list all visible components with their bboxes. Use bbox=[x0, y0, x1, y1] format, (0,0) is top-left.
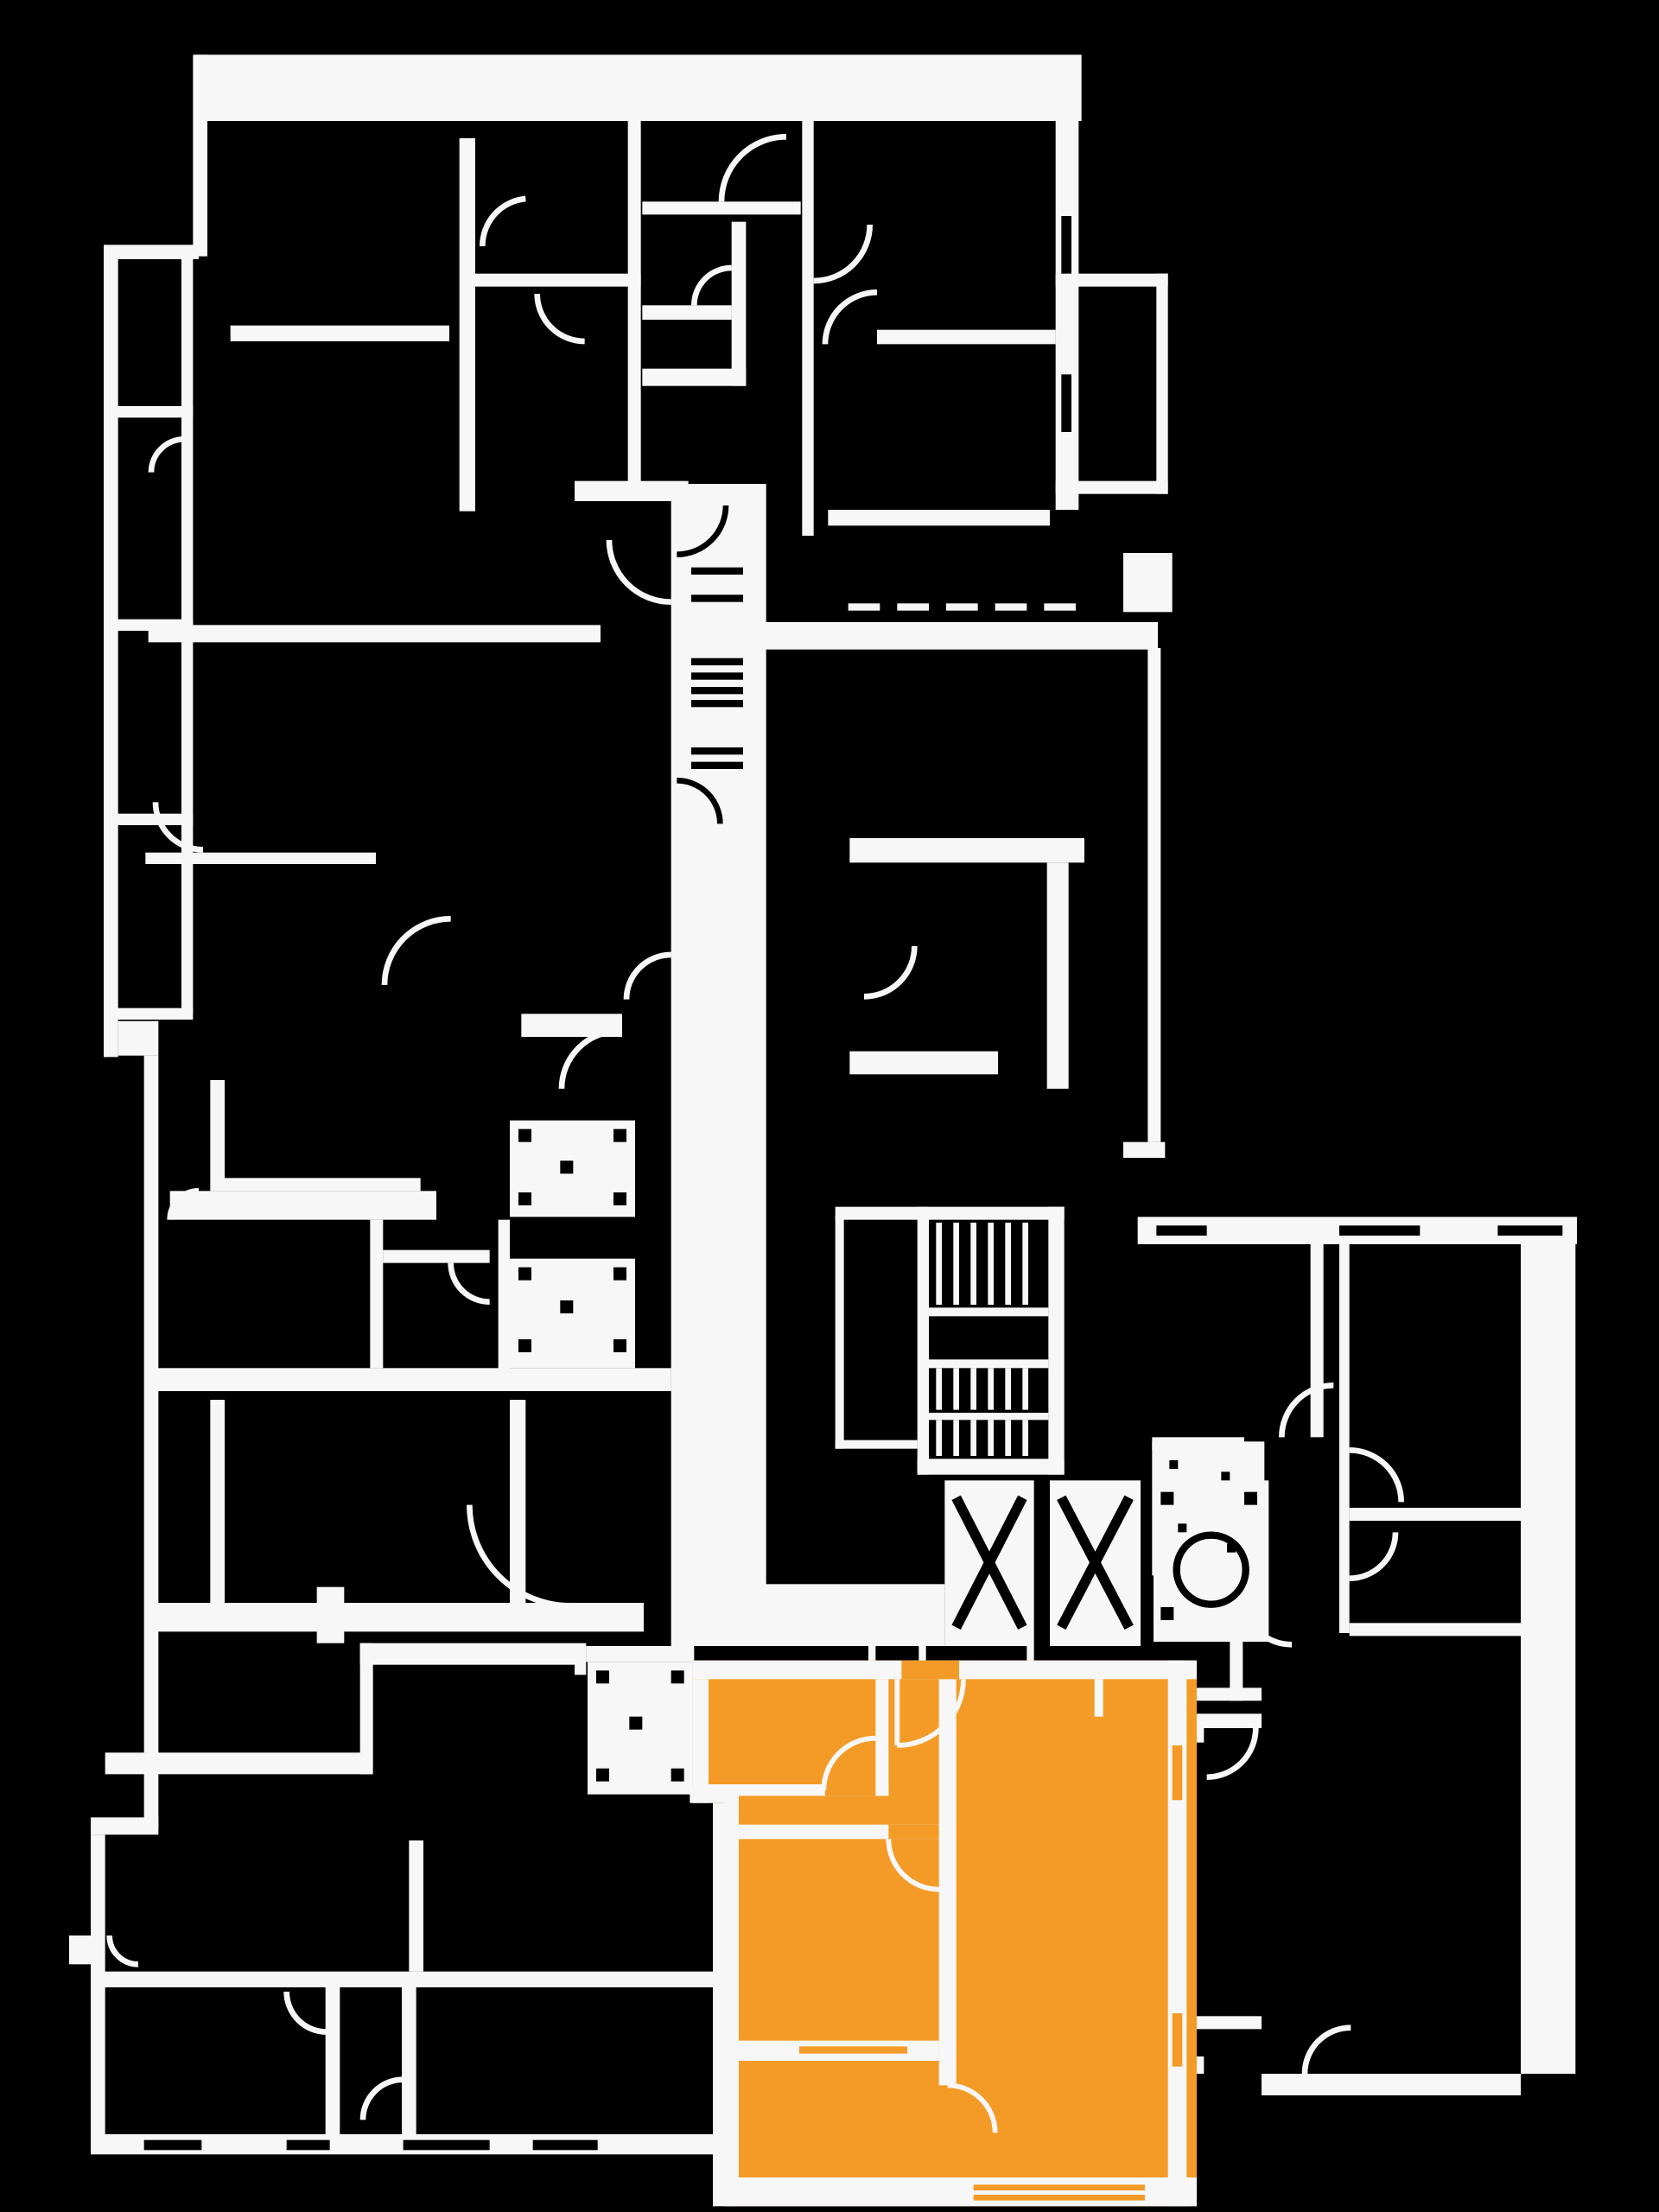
wall-segment bbox=[409, 1840, 423, 1972]
wall-segment bbox=[1047, 862, 1069, 1089]
unit-wall-segment bbox=[1095, 1679, 1103, 1716]
wall-segment bbox=[149, 625, 601, 642]
unit-wall-segment bbox=[730, 2177, 1197, 2206]
machine-room-mark bbox=[1160, 1607, 1173, 1620]
service-shaft-dot bbox=[596, 1670, 609, 1683]
wall-segment bbox=[732, 222, 747, 386]
wall-segment bbox=[642, 201, 800, 214]
window-gap bbox=[404, 2140, 490, 2151]
window-gap bbox=[1061, 374, 1071, 432]
fixture-mark bbox=[1169, 1460, 1178, 1469]
unit-opening bbox=[825, 1784, 875, 1796]
service-shaft-dot bbox=[518, 1129, 531, 1142]
window-gap bbox=[287, 2140, 330, 2151]
stair-wall bbox=[918, 1459, 1065, 1474]
service-shaft-dot bbox=[613, 1339, 626, 1352]
wall-segment bbox=[1056, 481, 1168, 494]
wall-segment bbox=[326, 1986, 340, 2134]
service-shaft-dot bbox=[518, 1192, 531, 1205]
wall-segment bbox=[877, 330, 1056, 345]
wall-segment bbox=[1350, 1508, 1521, 1521]
service-shaft-dot bbox=[518, 1339, 531, 1352]
unit-opening bbox=[799, 2046, 907, 2053]
wall-segment bbox=[210, 1080, 225, 1191]
stair-wall bbox=[836, 1207, 1065, 1220]
unit-wall-segment bbox=[939, 1679, 957, 2085]
corridor-threshold bbox=[691, 568, 743, 575]
stair-wall bbox=[1048, 1207, 1064, 1475]
wall-segment bbox=[91, 1817, 158, 1834]
corridor-threshold bbox=[691, 700, 743, 707]
service-shaft-dot bbox=[518, 1268, 531, 1281]
wall-segment bbox=[1027, 1646, 1033, 1661]
wall-segment bbox=[1186, 1688, 1262, 1700]
wall-segment bbox=[1311, 1244, 1324, 1437]
floor-plan-viewport bbox=[0, 0, 1659, 2212]
wall-segment bbox=[868, 1646, 875, 1661]
wall-segment bbox=[897, 603, 929, 610]
machine-room bbox=[1154, 1480, 1268, 1642]
wall-segment bbox=[210, 1400, 225, 1603]
wall-segment bbox=[145, 1368, 671, 1391]
unit-opening bbox=[1173, 2013, 1183, 2067]
wall-segment bbox=[102, 1972, 728, 1987]
wall-segment bbox=[1350, 1623, 1521, 1636]
wall-segment bbox=[69, 1935, 91, 1964]
wall-segment bbox=[1044, 603, 1076, 610]
service-shaft-dot bbox=[596, 1769, 609, 1782]
unit-opening bbox=[974, 2184, 1145, 2190]
stair-wall bbox=[929, 1359, 1048, 1368]
stair-wall bbox=[918, 1207, 929, 1475]
wall-segment bbox=[1262, 2074, 1521, 2095]
floor-plan-svg bbox=[0, 0, 1659, 2212]
service-shaft-dot bbox=[613, 1268, 626, 1281]
wall-segment bbox=[849, 838, 1084, 862]
corridor-threshold bbox=[691, 762, 743, 769]
service-shaft-dot bbox=[629, 1717, 642, 1730]
wall-segment bbox=[1197, 1713, 1262, 1728]
unit-wall-segment bbox=[1168, 1661, 1187, 2207]
window-gap bbox=[1061, 216, 1071, 274]
wall-segment bbox=[231, 326, 449, 341]
wall-segment bbox=[460, 138, 475, 512]
wall-segment bbox=[946, 603, 978, 610]
wall-segment bbox=[402, 1986, 416, 2134]
wall-segment bbox=[118, 1021, 159, 1056]
corridor-threshold bbox=[691, 747, 743, 754]
wall-segment bbox=[144, 1056, 159, 1829]
wall-segment bbox=[1186, 2016, 1262, 2029]
wall-segment bbox=[370, 1220, 383, 1369]
unit-wall-segment bbox=[875, 1679, 888, 1796]
wall-segment bbox=[510, 1400, 525, 1603]
service-shaft-dot bbox=[671, 1670, 684, 1683]
wall-segment bbox=[802, 121, 813, 536]
unit-opening bbox=[974, 2195, 1145, 2201]
corridor-threshold bbox=[691, 687, 743, 694]
window-gap bbox=[533, 2140, 598, 2151]
wall-segment bbox=[1123, 553, 1173, 612]
wall-segment bbox=[1147, 648, 1160, 1142]
service-shaft-dot bbox=[613, 1192, 626, 1205]
service-shaft-dot bbox=[560, 1160, 573, 1173]
machine-room-mark bbox=[1160, 1492, 1173, 1505]
fixture-mark bbox=[1178, 1523, 1186, 1532]
wall-segment bbox=[1521, 1244, 1575, 2074]
wall-segment bbox=[196, 54, 1082, 121]
wall-segment bbox=[475, 274, 641, 287]
wall-segment bbox=[995, 603, 1027, 610]
wall-segment bbox=[849, 603, 880, 610]
unit-opening bbox=[888, 1825, 938, 1840]
wall-segment bbox=[1339, 1244, 1350, 1633]
fixture-mark bbox=[1227, 1544, 1236, 1553]
wall-segment bbox=[586, 1646, 694, 1662]
wall-segment bbox=[836, 1440, 918, 1449]
wall-segment bbox=[760, 1584, 944, 1646]
wall-segment bbox=[360, 1643, 575, 1665]
wall-segment bbox=[628, 121, 641, 484]
wall-segment bbox=[828, 510, 1050, 525]
window-gap bbox=[1156, 1225, 1206, 1236]
wall-segment bbox=[193, 54, 207, 256]
fixture-mark bbox=[1221, 1471, 1230, 1480]
wall-segment bbox=[225, 1178, 421, 1191]
wall-segment bbox=[499, 1220, 510, 1391]
wall-segment bbox=[1156, 274, 1167, 494]
wall-segment bbox=[383, 1250, 489, 1263]
service-shaft-dot bbox=[671, 1769, 684, 1782]
wall-segment bbox=[750, 622, 1158, 650]
wall-segment bbox=[105, 1752, 372, 1774]
wall-segment bbox=[104, 257, 118, 1058]
stair-wall bbox=[929, 1413, 1048, 1420]
corridor-threshold bbox=[691, 594, 743, 601]
window-gap bbox=[1339, 1225, 1420, 1236]
unit-opening bbox=[1173, 1745, 1183, 1800]
unit-wall-segment bbox=[724, 1789, 739, 2206]
highlighted-unit[interactable] bbox=[690, 1661, 1197, 2207]
wall-segment bbox=[642, 305, 731, 320]
unit-opening bbox=[901, 1661, 959, 1680]
wall-segment bbox=[1056, 121, 1079, 510]
wall-segment bbox=[642, 369, 746, 386]
wall-segment bbox=[918, 1646, 925, 1661]
corridor-threshold bbox=[691, 672, 743, 679]
wall-segment bbox=[1123, 1142, 1165, 1158]
stair-wall bbox=[929, 1307, 1048, 1316]
unit-wall-segment bbox=[693, 1679, 709, 1802]
wall-segment bbox=[836, 1216, 844, 1449]
window-gap bbox=[144, 2140, 202, 2151]
machine-room-mark bbox=[1244, 1492, 1257, 1505]
wall-segment bbox=[849, 1052, 998, 1075]
corridor-threshold bbox=[691, 658, 743, 665]
wall-segment bbox=[145, 853, 376, 864]
wall-segment bbox=[1056, 274, 1168, 287]
window-gap bbox=[1497, 1225, 1562, 1236]
wall-segment bbox=[117, 1008, 193, 1020]
wall-segment bbox=[170, 1191, 436, 1219]
wall-segment bbox=[117, 406, 193, 417]
service-shaft-dot bbox=[613, 1129, 626, 1142]
service-shaft-dot bbox=[560, 1300, 573, 1313]
wall-segment bbox=[575, 1643, 586, 1675]
